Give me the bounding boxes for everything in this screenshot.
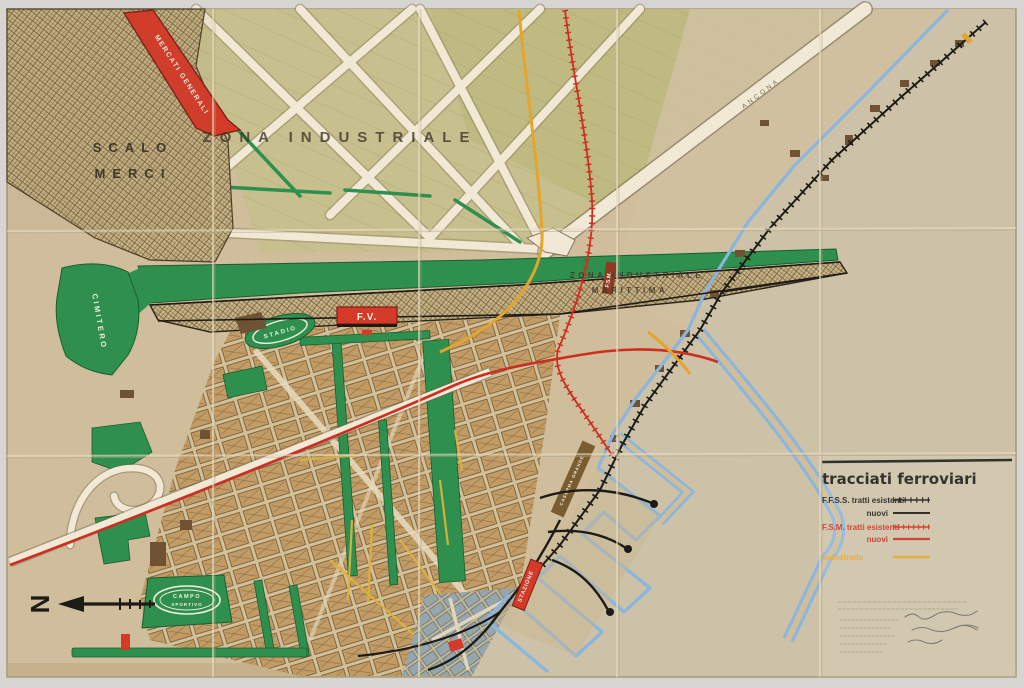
red-marker-left: [121, 634, 130, 650]
zona-industriale-label: ZONA INDUSTRIALE: [203, 129, 478, 146]
north-label: N: [25, 595, 55, 614]
campo-sportivo: CAMPO SPORTIVO: [142, 575, 232, 628]
zim-label-line1: ZONA INDUSTRIALE: [570, 271, 704, 280]
map-photo: CIMITERO CAMPO SPORTIVO S: [0, 0, 1024, 688]
fv-label: F.V.: [357, 312, 377, 323]
panel-tint-tl: [7, 9, 213, 231]
campo-label-line1: CAMPO: [173, 594, 201, 600]
panel-tint-br: [822, 456, 1016, 677]
campo-label-line2: SPORTIVO: [171, 602, 202, 607]
map-canvas: CIMITERO CAMPO SPORTIVO S: [0, 0, 1024, 688]
zim-label-line2: MARITTIMA: [592, 286, 668, 295]
